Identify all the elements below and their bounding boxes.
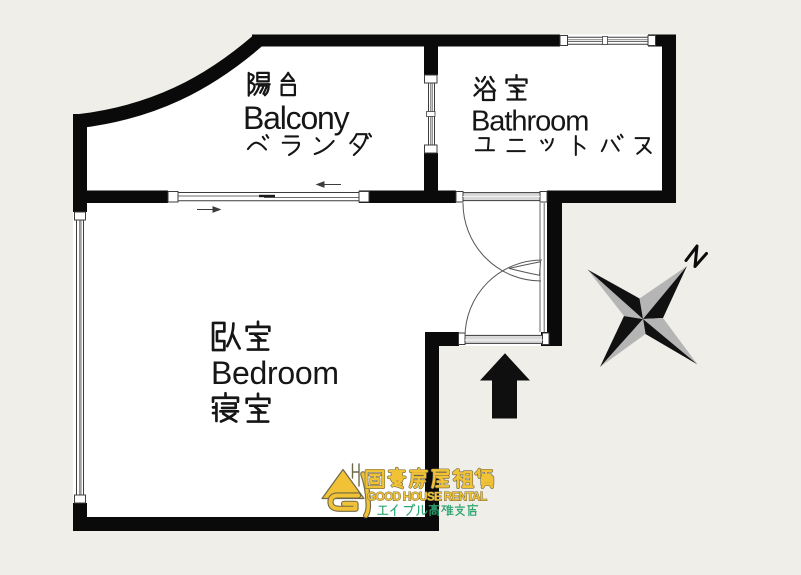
svg-text:GOOD HOUSE RENTAL: GOOD HOUSE RENTAL: [367, 490, 487, 504]
svg-text:Bedroom: Bedroom: [211, 355, 339, 391]
svg-text:Balcony: Balcony: [243, 100, 350, 136]
svg-text:Bathroom: Bathroom: [471, 106, 588, 138]
